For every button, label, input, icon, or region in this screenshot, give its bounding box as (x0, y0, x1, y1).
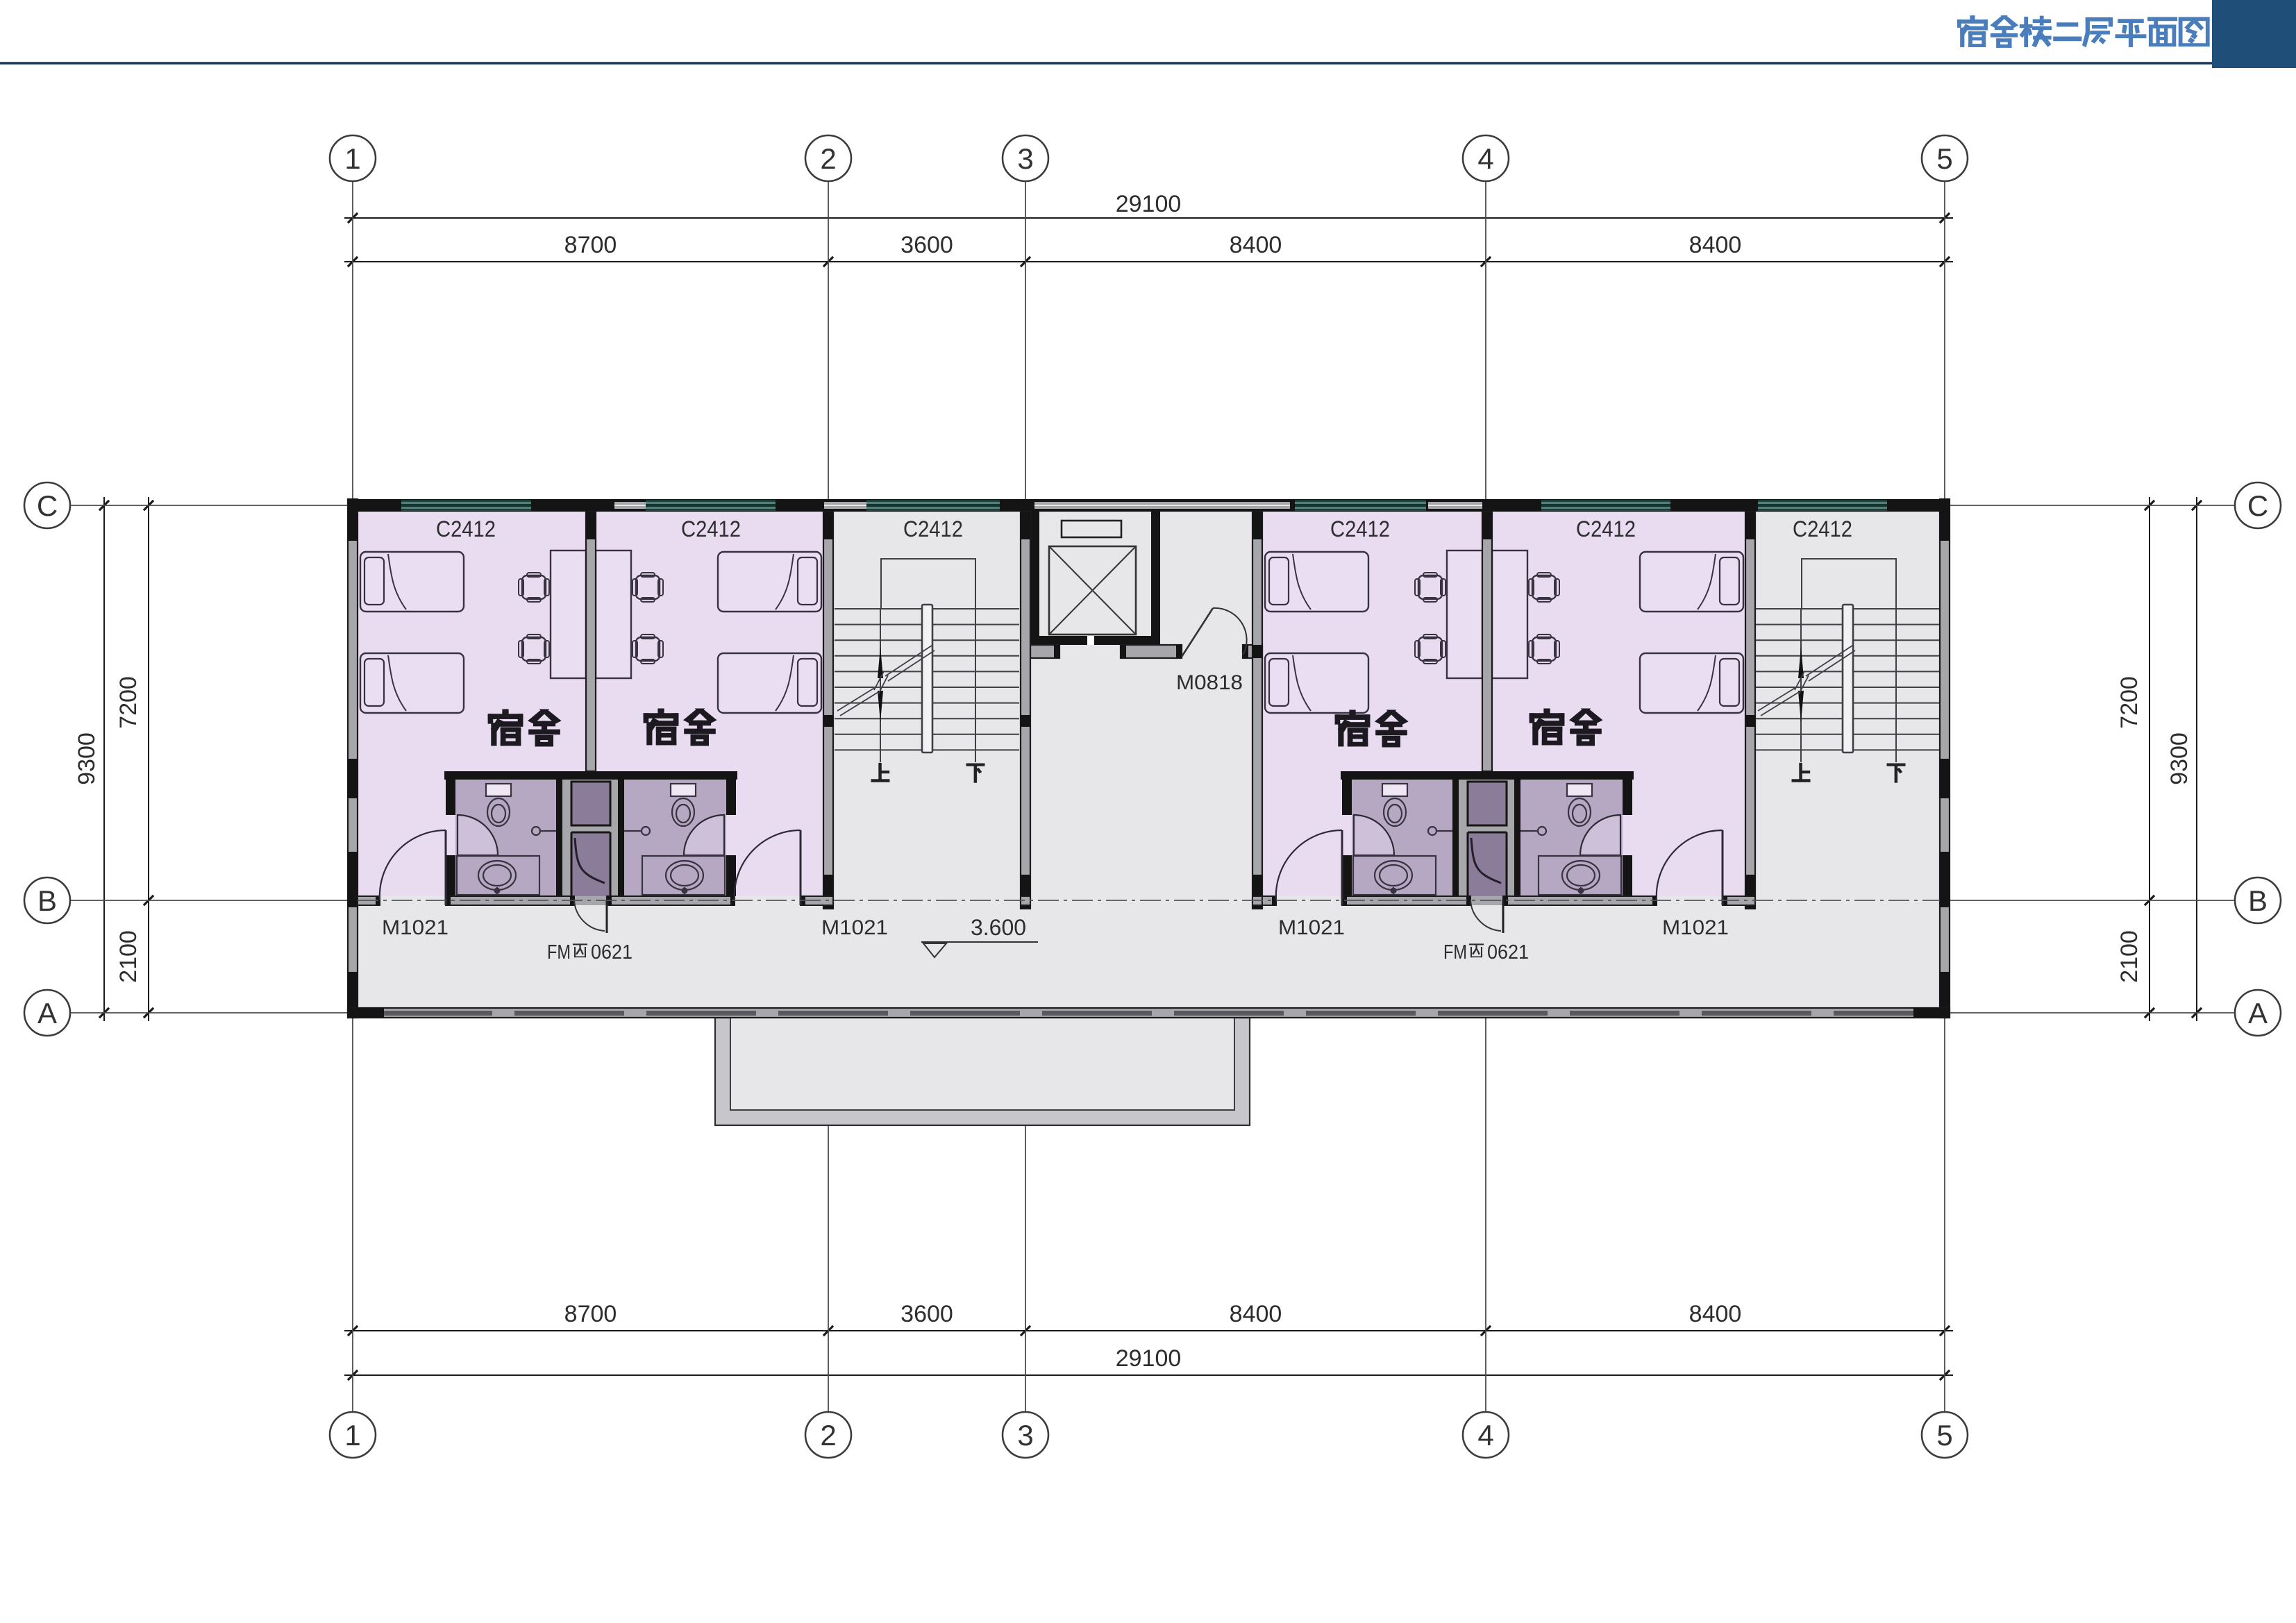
svg-text:2100: 2100 (2116, 930, 2143, 983)
svg-text:9300: 9300 (2166, 732, 2193, 785)
svg-text:B: B (2248, 884, 2268, 917)
svg-text:B: B (37, 884, 57, 917)
svg-text:M0818: M0818 (1176, 671, 1243, 694)
svg-text:A: A (37, 997, 57, 1029)
svg-text:8400: 8400 (1230, 232, 1282, 258)
svg-text:8400: 8400 (1689, 1301, 1742, 1327)
svg-text:8700: 8700 (564, 1301, 617, 1327)
svg-text:3: 3 (1017, 142, 1033, 175)
svg-text:7200: 7200 (2116, 676, 2143, 729)
svg-text:A: A (2248, 997, 2268, 1029)
svg-text:C2412: C2412 (1576, 516, 1636, 541)
svg-text:2100: 2100 (115, 930, 142, 983)
svg-text:FM: FM (547, 941, 571, 964)
svg-text:8400: 8400 (1230, 1301, 1282, 1327)
svg-text:5: 5 (1936, 142, 1952, 175)
svg-text:M1021: M1021 (821, 916, 888, 939)
svg-text:0621: 0621 (1487, 941, 1529, 964)
svg-text:4: 4 (1477, 1419, 1493, 1452)
svg-text:FM: FM (1443, 941, 1467, 964)
svg-text:C: C (2247, 489, 2268, 522)
svg-text:1: 1 (344, 1419, 360, 1452)
svg-text:8700: 8700 (564, 232, 617, 258)
svg-text:29100: 29100 (1116, 1345, 1182, 1372)
svg-text:2: 2 (820, 1419, 836, 1452)
svg-text:3600: 3600 (900, 232, 953, 258)
svg-text:3600: 3600 (900, 1301, 953, 1327)
svg-text:M1021: M1021 (382, 916, 449, 939)
svg-text:3: 3 (1017, 1419, 1033, 1452)
svg-text:9300: 9300 (74, 732, 100, 785)
svg-text:C2412: C2412 (681, 516, 741, 541)
svg-text:3.600: 3.600 (971, 915, 1026, 940)
svg-text:M1021: M1021 (1662, 916, 1729, 939)
svg-text:M1021: M1021 (1278, 916, 1345, 939)
svg-text:5: 5 (1936, 1419, 1952, 1452)
svg-text:2: 2 (820, 142, 836, 175)
svg-text:C2412: C2412 (903, 516, 963, 541)
svg-text:4: 4 (1477, 142, 1493, 175)
svg-text:0621: 0621 (591, 941, 632, 964)
svg-text:C: C (37, 489, 58, 522)
svg-text:C2412: C2412 (436, 516, 496, 541)
svg-text:1: 1 (344, 142, 360, 175)
svg-text:7200: 7200 (115, 676, 142, 729)
svg-text:29100: 29100 (1116, 191, 1182, 217)
svg-text:8400: 8400 (1689, 232, 1742, 258)
svg-text:C2412: C2412 (1793, 516, 1852, 541)
svg-text:C2412: C2412 (1330, 516, 1390, 541)
